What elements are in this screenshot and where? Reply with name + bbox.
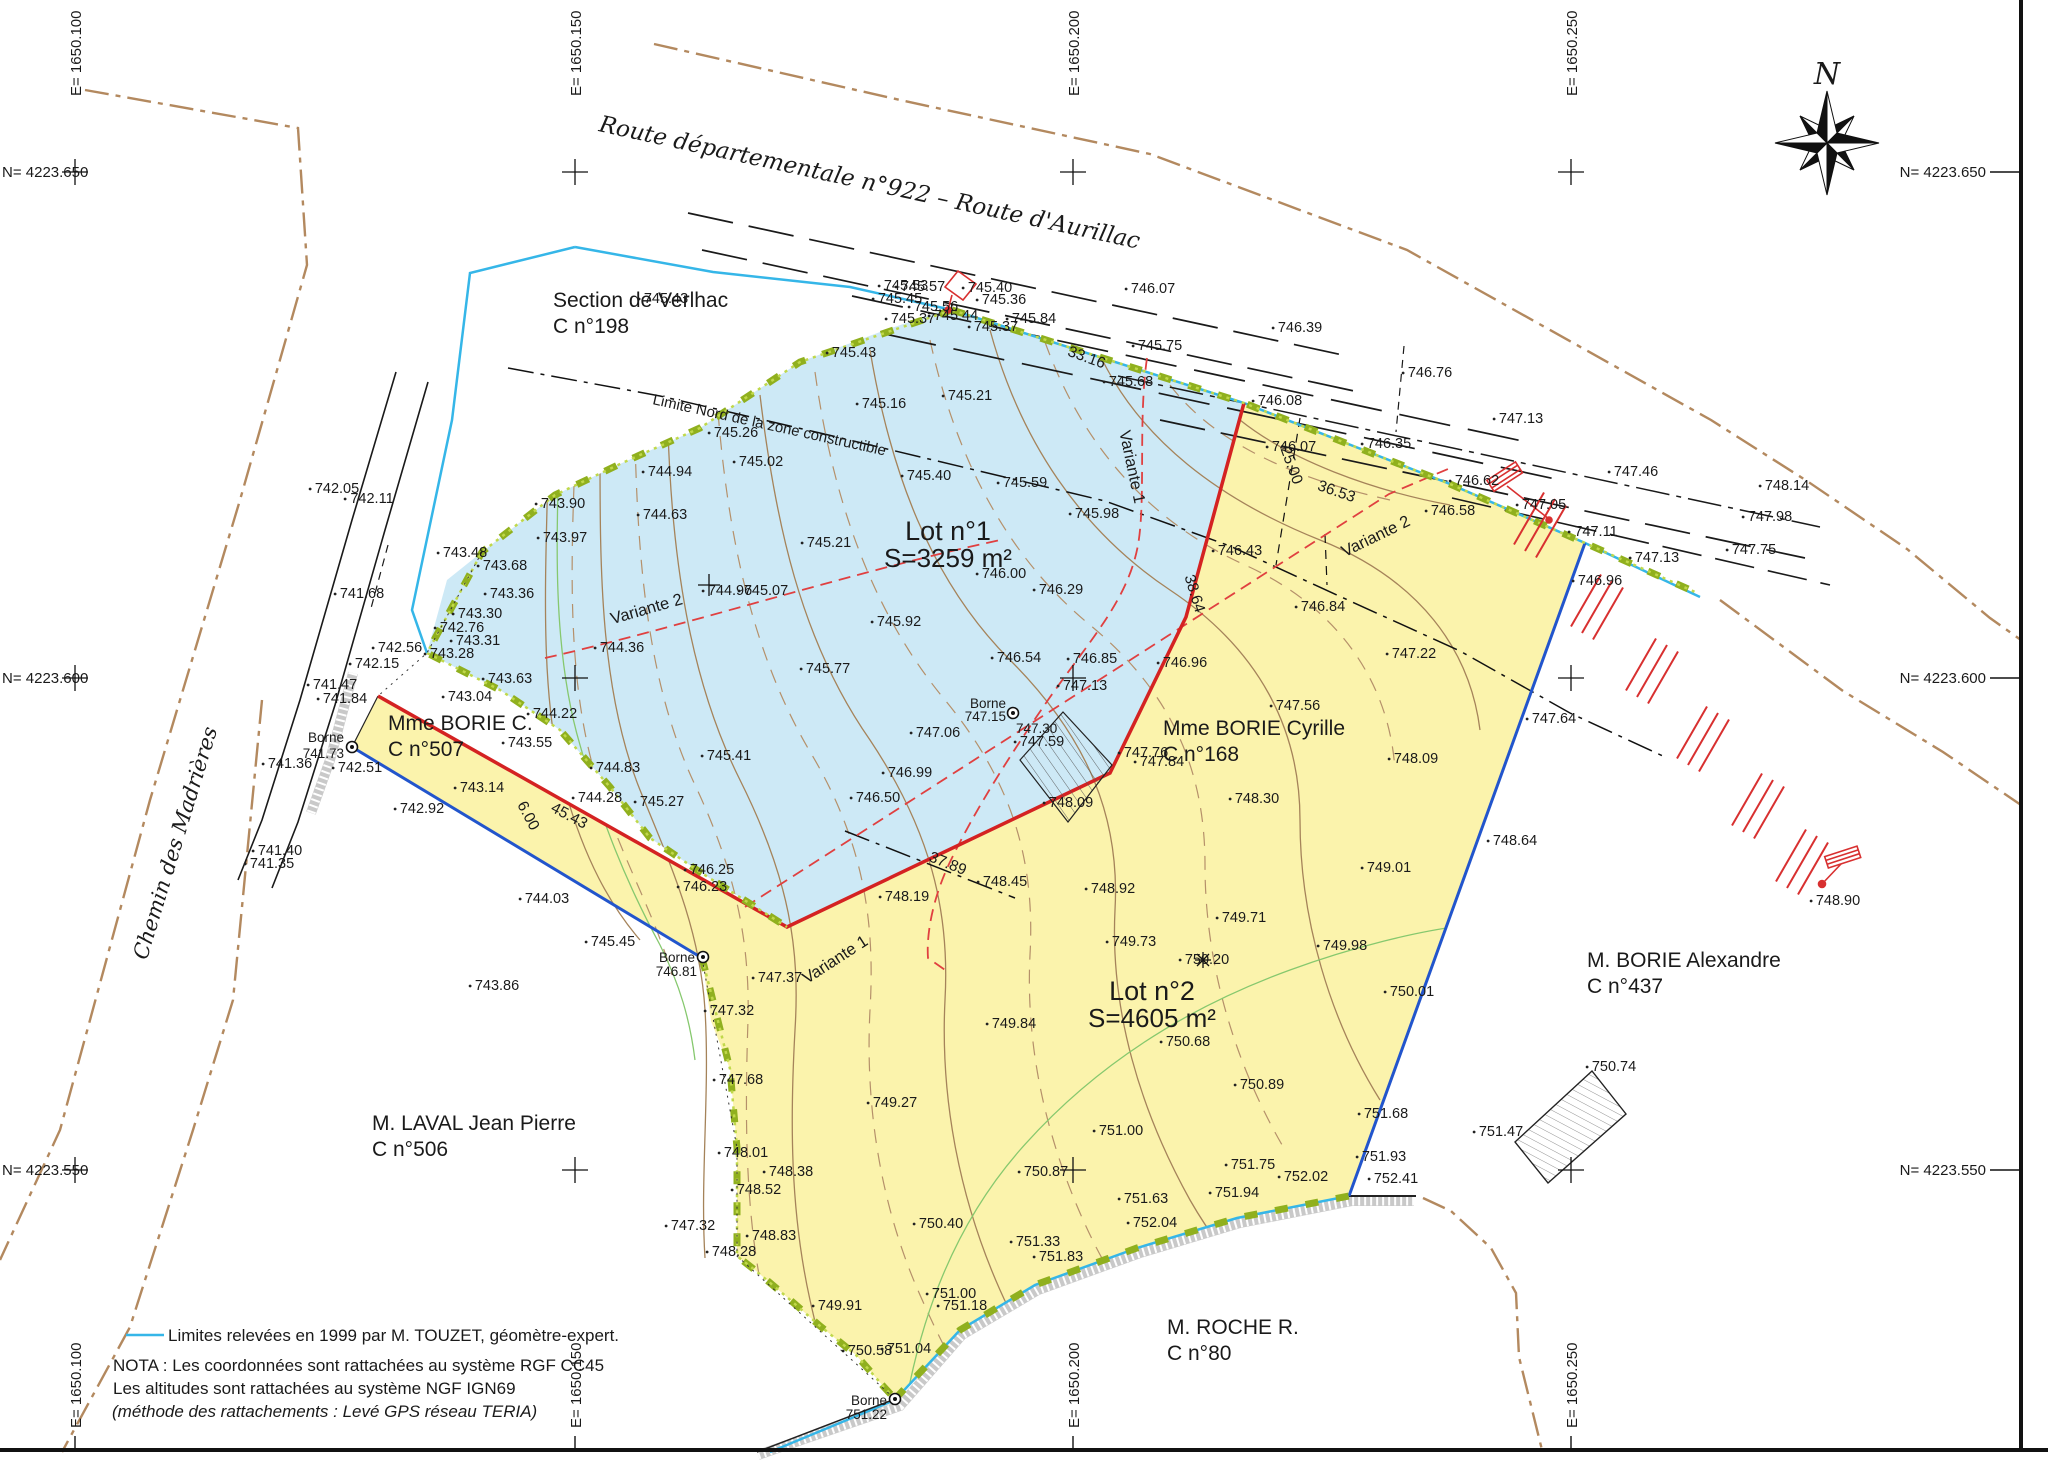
spot-point <box>502 742 505 745</box>
spot-point <box>701 755 704 758</box>
parcel-ref: C n°437 <box>1587 975 1663 998</box>
spot-elevation: 749.27 <box>873 1095 917 1111</box>
spot-point <box>452 613 455 616</box>
spot-elevation: 748.19 <box>885 889 929 905</box>
spot-elevation: 744.94 <box>648 464 692 480</box>
spot-point <box>1067 658 1070 661</box>
spot-point <box>594 647 597 650</box>
spot-elevation: 743.55 <box>508 735 552 751</box>
spot-point <box>1179 959 1182 962</box>
spot-elevation: 745.21 <box>948 388 992 404</box>
spot-point <box>1085 888 1088 891</box>
grid-cross <box>1060 159 1086 185</box>
spot-elevation: 747.59 <box>1020 734 1064 750</box>
spot-point <box>262 763 265 766</box>
spot-point <box>910 732 913 735</box>
spot-elevation: 748.38 <box>769 1164 813 1180</box>
legend-nota2: Les altitudes sont rattachées au système… <box>113 1379 516 1398</box>
parcel-ref: C n°506 <box>372 1138 448 1161</box>
spot-point <box>752 977 755 980</box>
spot-point <box>572 797 575 800</box>
spot-point <box>800 668 803 671</box>
spot-elevation: 747.64 <box>1532 711 1576 727</box>
borne-label: Borne <box>308 730 344 745</box>
spot-elevation: 745.44 <box>934 308 978 324</box>
spot-point <box>642 471 645 474</box>
spot-elevation: 751.00 <box>1099 1123 1143 1139</box>
grid-n-label: N= 4223.600 <box>1900 670 1986 687</box>
spot-point <box>677 886 680 889</box>
grid-e-label: E= 1650.150 <box>568 11 585 97</box>
spot-point <box>1361 443 1364 446</box>
spot-point <box>394 808 397 811</box>
spot-point <box>434 627 437 630</box>
spot-point <box>309 488 312 491</box>
spot-elevation: 746.08 <box>1258 393 1302 409</box>
parcel-owner: M. BORIE Alexandre <box>1587 949 1781 972</box>
spot-point <box>1270 705 1273 708</box>
spot-elevation: 745.41 <box>707 748 751 764</box>
spot-point <box>867 1102 870 1105</box>
spot-elevation: 750.58 <box>848 1343 892 1359</box>
spot-point <box>746 1235 749 1238</box>
spot-elevation: 752.04 <box>1133 1215 1177 1231</box>
spot-elevation: 746.07 <box>1131 281 1175 297</box>
spot-point <box>713 1079 716 1082</box>
spot-point <box>1526 718 1529 721</box>
spot-elevation: 744.36 <box>600 640 644 656</box>
spot-elevation: 751.47 <box>1479 1124 1523 1140</box>
spot-elevation: 746.25 <box>690 862 734 878</box>
red-hatch-mark <box>1648 652 1678 704</box>
spot-elevation: 744.63 <box>643 507 687 523</box>
spot-elevation: 743.86 <box>475 978 519 994</box>
spot-point <box>437 552 440 555</box>
spot-point <box>908 306 911 309</box>
spot-point <box>1014 741 1017 744</box>
spot-elevation: 743.90 <box>541 496 585 512</box>
parcel-owner: M. ROCHE R. <box>1167 1316 1299 1339</box>
spot-point <box>1234 1084 1237 1087</box>
spot-elevation: 748.92 <box>1091 881 1135 897</box>
borne-icon-center <box>1011 711 1015 715</box>
spot-elevation: 742.56 <box>378 640 422 656</box>
red-hatch-mark <box>1688 713 1718 765</box>
spot-elevation: 746.23 <box>683 879 727 895</box>
spot-point <box>1132 345 1135 348</box>
spot-elevation: 746.84 <box>1301 599 1345 615</box>
spot-point <box>842 1350 845 1353</box>
spot-point <box>801 542 804 545</box>
parcel-owner: Mme BORIE C. <box>388 712 533 735</box>
spot-elevation: 746.96 <box>1163 655 1207 671</box>
spot-point <box>1209 1192 1212 1195</box>
grid-n-label: N= 4223.650 <box>2 164 88 181</box>
red-hatch-mark <box>1593 588 1623 640</box>
spot-elevation: 743.28 <box>430 646 474 662</box>
spot-point <box>812 1305 815 1308</box>
spot-point <box>424 653 427 656</box>
spot-elevation: 748.14 <box>1765 478 1809 494</box>
spot-point <box>991 657 994 660</box>
spot-elevation: 748.01 <box>724 1145 768 1161</box>
spot-point <box>871 621 874 624</box>
red-hatch-mark <box>1732 774 1762 826</box>
spot-elevation: 746.50 <box>856 790 900 806</box>
spot-point <box>469 985 472 988</box>
spot-elevation: 750.68 <box>1166 1034 1210 1050</box>
spot-point <box>1386 653 1389 656</box>
spot-elevation: 750.74 <box>1592 1059 1636 1075</box>
spot-elevation: 751.18 <box>943 1298 987 1314</box>
spot-point <box>856 403 859 406</box>
north-letter: N <box>1813 57 1842 92</box>
lot-name: Lot n°2 <box>1109 976 1195 1006</box>
spot-point <box>882 772 885 775</box>
spot-elevation: 750.89 <box>1240 1077 1284 1093</box>
spot-elevation: 748.64 <box>1493 833 1537 849</box>
spot-elevation: 749.91 <box>818 1298 862 1314</box>
grid-cross <box>562 1157 588 1183</box>
spot-elevation: 747.32 <box>710 1003 754 1019</box>
parcel-owner: Mme BORIE Cyrille <box>1163 717 1345 740</box>
spot-point <box>1726 549 1729 552</box>
spot-point <box>372 647 375 650</box>
spot-point <box>477 565 480 568</box>
spot-point <box>244 863 247 866</box>
grid-e-label: E= 1650.200 <box>1066 11 1083 97</box>
red-hatch-mark <box>1743 780 1773 832</box>
spot-elevation: 745.21 <box>807 535 851 551</box>
red-hatch-mark <box>1787 836 1817 888</box>
spot-elevation: 745.45 <box>591 934 635 950</box>
spot-point <box>484 593 487 596</box>
grid-e-label: E= 1650.200 <box>1066 1343 1083 1429</box>
spot-point <box>1568 531 1571 534</box>
spot-elevation: 746.99 <box>888 765 932 781</box>
spot-elevation: 748.28 <box>712 1244 756 1260</box>
spot-point <box>1473 1131 1476 1134</box>
spot-point <box>926 1293 929 1296</box>
spot-point <box>879 896 882 899</box>
spot-elevation: 752.02 <box>1284 1169 1328 1185</box>
flag-icon <box>1825 846 1861 868</box>
spot-point <box>307 684 310 687</box>
red-hatch-mark <box>1677 707 1707 759</box>
grid-n-label: N= 4223.550 <box>1900 1162 1986 1179</box>
spot-elevation: 748.83 <box>752 1228 796 1244</box>
spot-point <box>1118 1198 1121 1201</box>
spot-point <box>1272 327 1275 330</box>
spot-elevation: 747.32 <box>671 1218 715 1234</box>
spot-elevation: 749.98 <box>1323 938 1367 954</box>
spot-elevation: 747.06 <box>916 725 960 741</box>
spot-elevation: 745.59 <box>1003 475 1047 491</box>
grid-cross <box>1558 665 1584 691</box>
red-hatch-mark <box>1699 720 1729 772</box>
spot-point <box>1118 752 1121 755</box>
spot-elevation: 745.68 <box>1109 374 1153 390</box>
spot-elevation: 748.90 <box>1816 893 1860 909</box>
spot-elevation: 742.92 <box>400 801 444 817</box>
spot-elevation: 750.01 <box>1390 984 1434 1000</box>
spot-point <box>634 801 637 804</box>
spot-elevation: 746.29 <box>1039 582 1083 598</box>
spot-elevation: 747.22 <box>1392 646 1436 662</box>
spot-elevation: 747.37 <box>758 970 802 986</box>
spot-elevation: 746.54 <box>997 650 1041 666</box>
spot-elevation: 746.76 <box>1408 365 1452 381</box>
route-name-label: Route départementale n°922 – Route d'Aur… <box>596 111 1143 254</box>
grid-e-label: E= 1650.250 <box>1564 1343 1581 1429</box>
spot-elevation: 748.45 <box>983 874 1027 890</box>
spot-point <box>1516 504 1519 507</box>
spot-point <box>1493 418 1496 421</box>
parcel-ref: C n°80 <box>1167 1342 1231 1365</box>
survey-plan-page: N Route départementale n°922 – Route d'A… <box>0 0 2048 1479</box>
borne-icon-center <box>701 955 705 959</box>
spot-point <box>962 287 965 290</box>
red-hatch-mark <box>1754 787 1784 839</box>
legend-limits: Limites relevées en 1999 par M. TOUZET, … <box>168 1326 619 1345</box>
spot-point <box>1361 867 1364 870</box>
spot-point <box>937 1305 940 1308</box>
spot-point <box>1127 1222 1130 1225</box>
spot-point <box>1010 1241 1013 1244</box>
spot-elevation: 751.83 <box>1039 1249 1083 1265</box>
spot-elevation: 750.40 <box>919 1216 963 1232</box>
spot-point <box>850 797 853 800</box>
spot-point <box>1103 381 1106 384</box>
spot-point <box>1033 589 1036 592</box>
spot-point <box>482 678 485 681</box>
spot-point <box>1384 991 1387 994</box>
lot-area: S=4605 m² <box>1088 1003 1216 1033</box>
spot-point <box>704 1010 707 1013</box>
red-hatch-mark <box>1637 645 1667 697</box>
spot-point <box>913 1223 916 1226</box>
spot-point <box>1759 485 1762 488</box>
spot-point <box>1402 372 1405 375</box>
spot-point <box>1295 606 1298 609</box>
spot-elevation: 744.22 <box>533 706 577 722</box>
spot-point <box>1252 400 1255 403</box>
spot-elevation: 743.68 <box>483 558 527 574</box>
spot-point <box>1018 1171 1021 1174</box>
spot-elevation: 744.28 <box>578 790 622 806</box>
spot-point <box>1449 480 1452 483</box>
spot-point <box>317 698 320 701</box>
spot-elevation: 745.84 <box>1012 311 1056 327</box>
spot-point <box>885 318 888 321</box>
spot-point <box>450 640 453 643</box>
spot-point <box>1134 761 1137 764</box>
spot-elevation: 745.43 <box>832 345 876 361</box>
spot-elevation: 745.27 <box>640 794 684 810</box>
spot-elevation: 747.05 <box>1522 497 1566 513</box>
spot-elevation: 742.51 <box>338 760 382 776</box>
grid-e-label: E= 1650.100 <box>68 1343 85 1429</box>
spot-point <box>1229 798 1232 801</box>
spot-elevation: 749.84 <box>992 1016 1036 1032</box>
spot-point <box>1033 1256 1036 1259</box>
compass-rose <box>1775 91 1879 195</box>
grid-cross <box>1558 159 1584 185</box>
spot-point <box>1572 580 1575 583</box>
spot-elevation: 745.37 <box>974 319 1018 335</box>
spot-point <box>1810 900 1813 903</box>
spot-point <box>1157 662 1160 665</box>
spot-point <box>826 352 829 355</box>
spot-point <box>708 432 711 435</box>
spot-point <box>986 1023 989 1026</box>
red-hatch-mark <box>1776 830 1806 882</box>
borne-label: 747.15 <box>965 709 1006 724</box>
spot-elevation: 745.07 <box>744 583 788 599</box>
spot-point <box>1057 685 1060 688</box>
spot-point <box>1629 557 1632 560</box>
chemin-name-label: Chemin des Madrières <box>128 723 222 962</box>
parcel-ref: C n°507 <box>388 738 464 761</box>
spot-point <box>881 1348 884 1351</box>
spot-point <box>590 767 593 770</box>
spot-point <box>1216 917 1219 920</box>
legend: Limites relevées en 1999 par M. TOUZET, … <box>112 1326 619 1421</box>
spot-point <box>1225 1164 1228 1167</box>
spot-point <box>763 1171 766 1174</box>
spot-point <box>731 1189 734 1192</box>
spot-elevation: 745.16 <box>862 396 906 412</box>
spot-point <box>977 881 980 884</box>
spot-point <box>1212 550 1215 553</box>
spot-elevation: 751.63 <box>1124 1191 1168 1207</box>
spot-elevation: 742.15 <box>355 656 399 672</box>
spot-point <box>537 537 540 540</box>
spot-elevation: 747.13 <box>1499 411 1543 427</box>
parcel-ref: C n°198 <box>553 315 629 338</box>
spot-elevation: 750.20 <box>1185 952 1229 968</box>
spot-elevation: 749.71 <box>1222 910 1266 926</box>
borne-icon-center <box>893 1397 897 1401</box>
spot-elevation: 744.03 <box>525 891 569 907</box>
spot-elevation: 746.58 <box>1431 503 1475 519</box>
spot-point <box>344 498 347 501</box>
grid-e-label: E= 1650.100 <box>68 11 85 97</box>
spot-elevation: 745.75 <box>1138 338 1182 354</box>
spot-elevation: 746.39 <box>1278 320 1322 336</box>
spot-point <box>585 941 588 944</box>
spot-elevation: 752.41 <box>1374 1171 1418 1187</box>
spot-point <box>1487 840 1490 843</box>
spot-elevation: 747.46 <box>1614 464 1658 480</box>
spot-elevation: 747.98 <box>1748 509 1792 525</box>
spot-point <box>738 590 741 593</box>
spot-point <box>1742 516 1745 519</box>
spot-elevation: 741.68 <box>340 586 384 602</box>
legend-nota3: (méthode des rattachements : Levé GPS ré… <box>112 1402 537 1421</box>
spot-point <box>1278 1176 1281 1179</box>
spot-point <box>976 299 979 302</box>
spot-elevation: 746.62 <box>1455 473 1499 489</box>
grid-n-label: N= 4223.600 <box>2 670 88 687</box>
spot-point <box>442 696 445 699</box>
grid-e-label: E= 1650.250 <box>1564 11 1581 97</box>
spot-elevation: 747.56 <box>1276 698 1320 714</box>
spot-point <box>349 663 352 666</box>
spot-elevation: 746.35 <box>1367 436 1411 452</box>
grid-n-label: N= 4223.650 <box>1900 164 1986 181</box>
spot-point <box>1608 471 1611 474</box>
cadastral-map: N Route départementale n°922 – Route d'A… <box>0 0 2048 1479</box>
spot-point <box>1317 945 1320 948</box>
borne-label: Borne <box>851 1393 887 1408</box>
spot-elevation: 745.98 <box>1075 506 1119 522</box>
parcel-owner: M. LAVAL Jean Pierre <box>372 1112 576 1135</box>
spot-point <box>1368 1178 1371 1181</box>
spot-point <box>535 503 538 506</box>
spot-elevation: 745.02 <box>739 454 783 470</box>
spot-elevation: 747.11 <box>1574 524 1617 540</box>
spot-point <box>718 1152 721 1155</box>
spot-point <box>1043 802 1046 805</box>
spot-elevation: 742.11 <box>350 491 393 507</box>
spot-elevation: 746.85 <box>1073 651 1117 667</box>
spot-elevation: 741.35 <box>250 856 294 872</box>
spot-elevation: 743.14 <box>460 780 504 796</box>
spot-elevation: 751.93 <box>1362 1149 1406 1165</box>
spot-point <box>1125 288 1128 291</box>
borne-label: 747.30 <box>1016 721 1057 736</box>
spot-elevation: 751.68 <box>1364 1106 1408 1122</box>
spot-point <box>1425 510 1428 513</box>
spot-elevation: 745.77 <box>806 661 850 677</box>
spot-point <box>733 461 736 464</box>
grid-cross <box>562 159 588 185</box>
spot-point <box>334 593 337 596</box>
spot-point <box>997 482 1000 485</box>
spot-point <box>1266 446 1269 449</box>
spot-point <box>1586 1066 1589 1069</box>
spot-elevation: 749.01 <box>1367 860 1411 876</box>
legend-nota1: NOTA : Les coordonnées sont rattachées a… <box>113 1356 604 1375</box>
borne-label: 741.73 <box>303 746 344 761</box>
spot-elevation: 751.94 <box>1215 1185 1259 1201</box>
lot-name: Lot n°1 <box>905 516 991 546</box>
spot-elevation: 749.73 <box>1112 934 1156 950</box>
parcel-ref: C n°168 <box>1163 743 1239 766</box>
spot-point <box>684 869 687 872</box>
spot-elevation: 750.87 <box>1024 1164 1068 1180</box>
spot-point <box>872 298 875 301</box>
spot-point <box>454 787 457 790</box>
spot-point <box>1069 513 1072 516</box>
borne-label: 746.81 <box>656 964 697 979</box>
spot-elevation: 743.36 <box>490 586 534 602</box>
spot-elevation: 741.84 <box>323 691 367 707</box>
spot-point <box>637 514 640 517</box>
spot-elevation: 743.04 <box>448 689 492 705</box>
spot-point <box>1106 941 1109 944</box>
grid-n-label: N= 4223.550 <box>2 1162 88 1179</box>
spot-point <box>519 898 522 901</box>
spot-elevation: 748.09 <box>1049 795 1093 811</box>
spot-point <box>1160 1041 1163 1044</box>
borne-label: Borne <box>659 950 695 965</box>
spot-elevation: 747.13 <box>1635 550 1679 566</box>
spot-elevation: 744.83 <box>596 760 640 776</box>
spot-point <box>252 850 255 853</box>
spot-elevation: 748.52 <box>737 1182 781 1198</box>
